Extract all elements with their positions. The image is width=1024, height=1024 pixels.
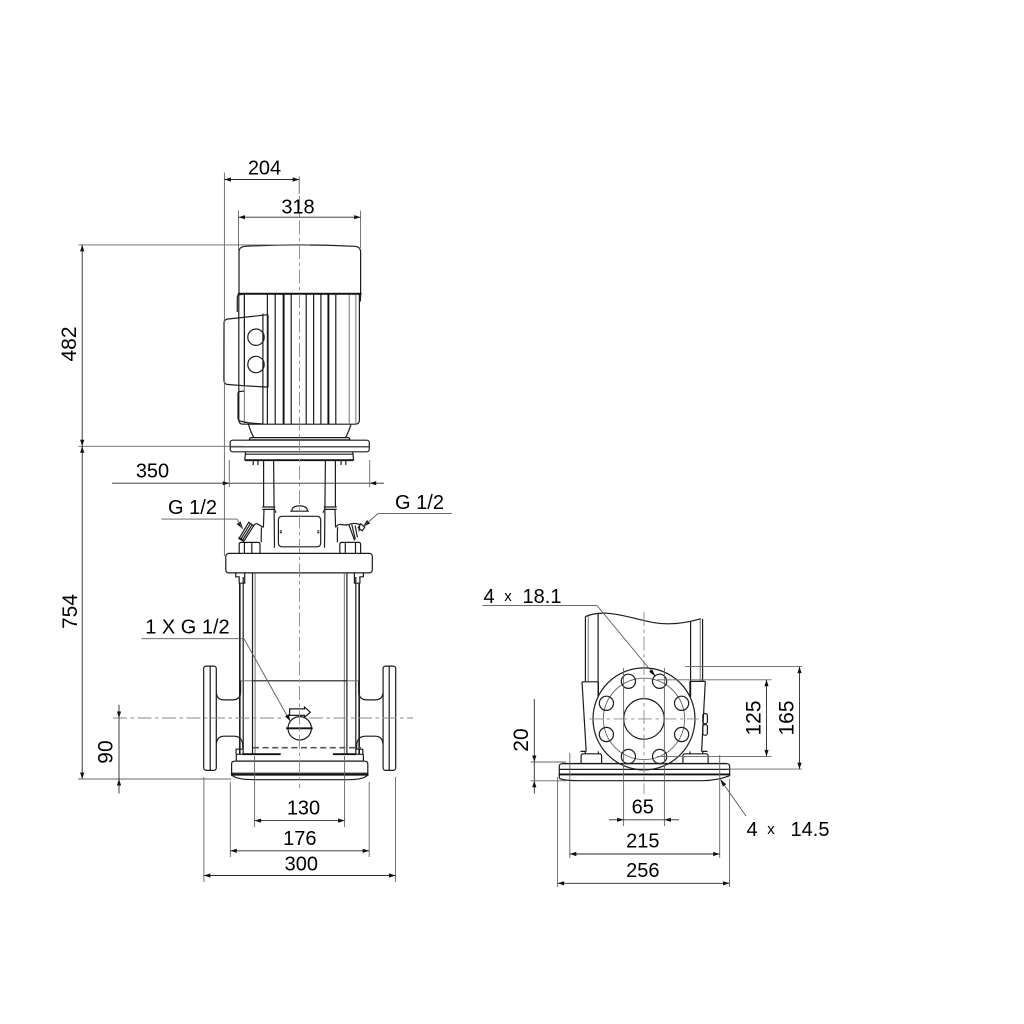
- svg-text:215: 215: [626, 831, 659, 853]
- svg-text:G 1/2: G 1/2: [168, 497, 217, 519]
- svg-text:176: 176: [283, 828, 316, 850]
- svg-text:482: 482: [58, 326, 81, 361]
- svg-text:204: 204: [248, 158, 281, 180]
- svg-text:754: 754: [59, 594, 82, 629]
- svg-text:65: 65: [632, 797, 654, 819]
- svg-text:20: 20: [510, 728, 533, 751]
- svg-text:x: x: [504, 588, 512, 605]
- svg-text:1 X G 1/2: 1 X G 1/2: [145, 617, 230, 639]
- svg-text:18.1: 18.1: [523, 586, 562, 608]
- svg-text:256: 256: [626, 860, 659, 882]
- svg-text:4: 4: [483, 586, 494, 608]
- svg-text:350: 350: [136, 461, 169, 483]
- svg-text:x: x: [767, 821, 775, 838]
- svg-text:G 1/2: G 1/2: [395, 492, 444, 514]
- svg-text:90: 90: [95, 740, 118, 763]
- svg-text:14.5: 14.5: [791, 819, 830, 841]
- svg-text:318: 318: [281, 197, 314, 219]
- svg-text:125: 125: [743, 700, 766, 735]
- svg-text:165: 165: [776, 700, 799, 735]
- svg-text:4: 4: [746, 819, 757, 841]
- svg-text:130: 130: [287, 798, 320, 820]
- svg-text:300: 300: [285, 854, 318, 876]
